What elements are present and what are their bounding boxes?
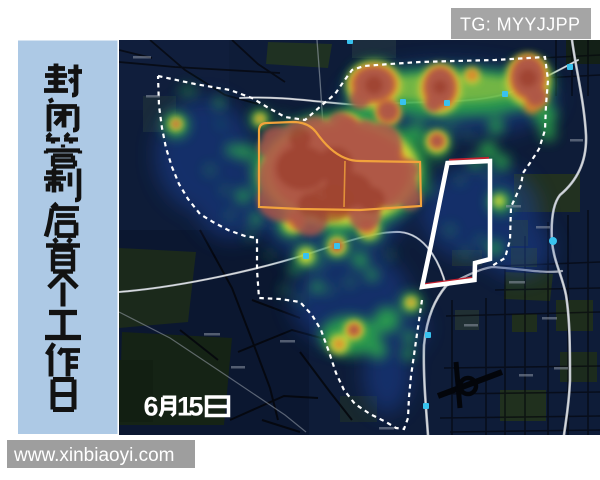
svg-text:TG: MYYJJPP: TG: MYYJJPP [460, 15, 580, 35]
svg-text:6: 6 [144, 392, 159, 422]
svg-text:www.xinbiaoyi.com: www.xinbiaoyi.com [13, 445, 175, 466]
svg-text:5: 5 [189, 392, 204, 422]
